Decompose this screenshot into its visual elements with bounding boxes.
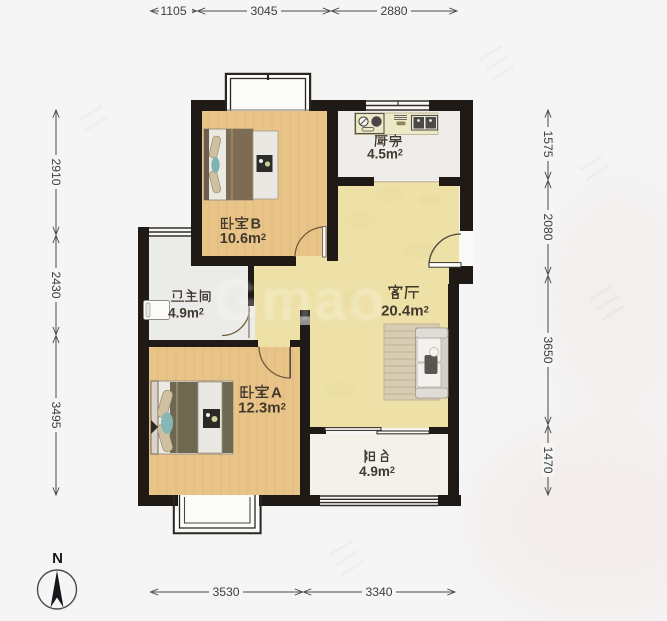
svg-text:3340: 3340 [365, 585, 392, 599]
svg-text:3495: 3495 [49, 401, 63, 428]
svg-text:12.3m2: 12.3m2 [238, 400, 286, 417]
svg-text:1470: 1470 [541, 446, 555, 473]
svg-text:N: N [52, 550, 63, 567]
svg-text:1105: 1105 [160, 4, 186, 18]
svg-text:4.9m2: 4.9m2 [168, 306, 204, 321]
svg-text:2910: 2910 [49, 158, 63, 185]
svg-text:4.9m2: 4.9m2 [359, 464, 395, 479]
svg-text:2880: 2880 [380, 4, 407, 18]
svg-text:2080: 2080 [541, 213, 555, 240]
svg-text:3650: 3650 [541, 336, 555, 363]
svg-text:2430: 2430 [49, 271, 63, 298]
svg-text:20.4m2: 20.4m2 [381, 303, 429, 320]
svg-text:3530: 3530 [212, 585, 239, 599]
svg-text:3045: 3045 [250, 4, 277, 18]
svg-text:Gmao: Gmao [214, 268, 386, 333]
svg-text:10.6m2: 10.6m2 [220, 231, 266, 247]
svg-text:4.5m2: 4.5m2 [367, 147, 403, 162]
svg-text:1575: 1575 [541, 130, 555, 157]
